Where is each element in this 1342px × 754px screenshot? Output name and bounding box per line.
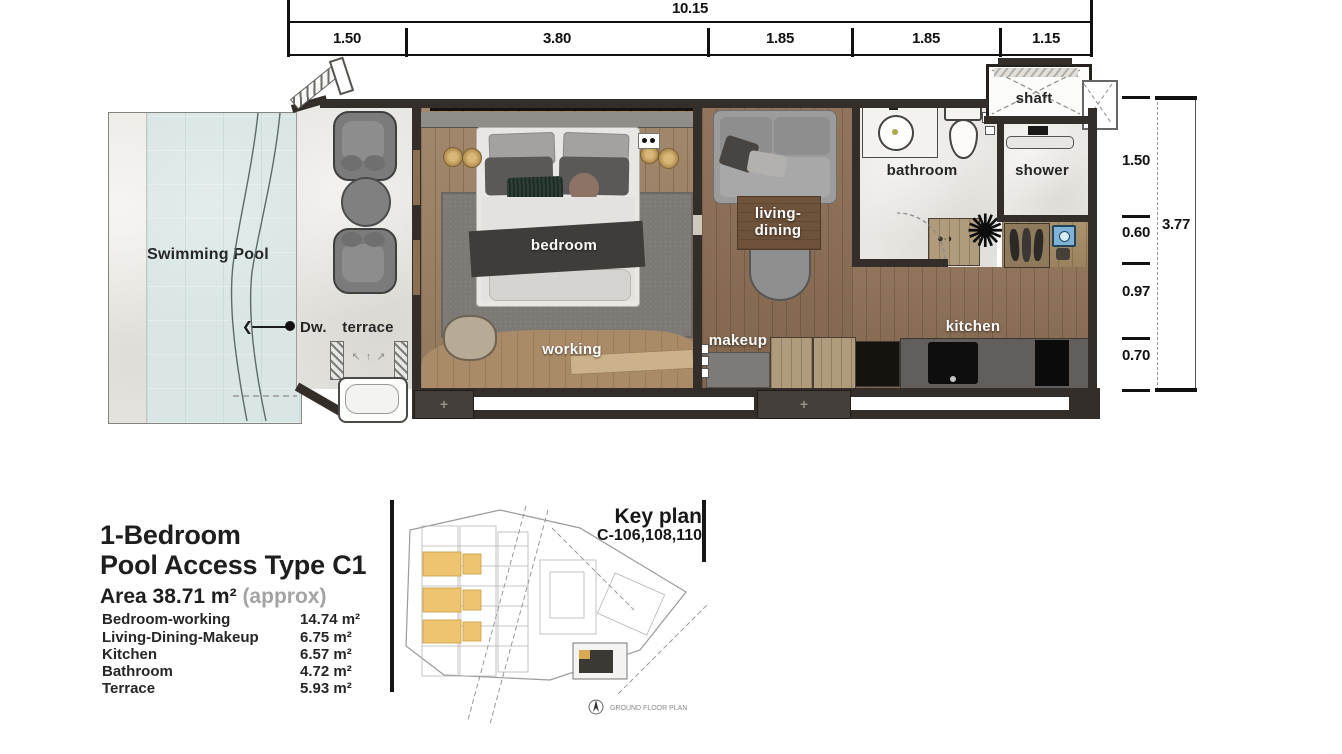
key-plan-title: Key plan <box>502 505 702 529</box>
wall-shower-divider <box>997 124 1004 222</box>
chair-cushion <box>341 155 362 171</box>
wall-accessory <box>985 126 995 135</box>
faucet-dot <box>950 376 956 382</box>
chair-cushion <box>342 244 384 282</box>
bed <box>476 127 640 307</box>
dim-tick <box>1122 337 1150 340</box>
sofa-cushion <box>774 117 830 155</box>
shaft-vent-strip <box>994 68 1078 77</box>
vent-hatch <box>330 341 344 380</box>
cooktop <box>1035 340 1069 386</box>
drain-arrow-line <box>252 326 289 328</box>
pouf <box>443 147 463 167</box>
room-area: 4.72 m² <box>300 663 352 680</box>
room-area-row: Terrace <box>102 680 282 698</box>
dim-end-bar <box>287 0 290 57</box>
dim-top-overall: 10.15 <box>288 0 1092 17</box>
area-qualifier: (approx) <box>242 585 326 608</box>
floor-plan-sheet: 10.15 1.50 3.80 1.85 1.85 1.15 1.50 0.60… <box>0 0 1342 754</box>
hanging-clothes <box>1009 229 1020 262</box>
dim-tick <box>1122 215 1150 218</box>
facade-post: + <box>414 390 474 419</box>
area-value: Area 38.71 m² <box>100 585 237 608</box>
dim-right-seg: 0.60 <box>1116 224 1156 241</box>
switch-dot <box>642 138 647 143</box>
wardrobe <box>1004 223 1050 268</box>
north-compass <box>589 700 603 714</box>
sliding-door <box>413 240 420 295</box>
dim-right-overall: 3.77 <box>1157 216 1195 233</box>
terrace-side-table <box>341 177 391 227</box>
room-area-row: Bathroom <box>102 663 282 681</box>
headboard-shelf <box>421 112 693 128</box>
swimming-pool <box>108 112 302 424</box>
bathtub <box>338 377 408 423</box>
room-area-value: 6.75 m² <box>300 629 352 647</box>
vent-hatch <box>394 341 408 380</box>
dim-end-bar <box>1090 0 1093 57</box>
basin-sink <box>878 115 914 151</box>
dim-top-seg: 1.15 <box>1000 30 1092 47</box>
room-area-value: 6.57 m² <box>300 646 352 664</box>
room-name: Living-Dining-Makeup <box>102 629 259 646</box>
dim-top-seg: 1.85 <box>708 30 852 47</box>
dim-tick <box>1122 96 1150 99</box>
kitchen-label: kitchen <box>940 318 1006 335</box>
dim-top-seg: 1.50 <box>288 30 406 47</box>
terrace-armchair <box>333 111 397 181</box>
key-plan-unit-code: C-106,108,110 <box>502 527 702 545</box>
key-plan-right-bar <box>702 500 706 562</box>
kitchen-sink <box>928 342 978 384</box>
room-area: 6.75 m² <box>300 629 352 646</box>
makeup-label: makeup <box>706 332 770 349</box>
dim-tick <box>1122 389 1150 392</box>
dim-right-seg: 0.70 <box>1116 347 1156 364</box>
dining-chair <box>749 243 811 301</box>
inset-plan <box>573 643 627 679</box>
unit-type-title-line2: Pool Access Type C1 <box>100 551 366 580</box>
dim-right-extent <box>1157 97 1196 390</box>
drain-dot <box>892 129 898 135</box>
terrace-label: terrace <box>336 319 400 336</box>
facade-window <box>851 397 1069 410</box>
living-dining-label-2: dining <box>748 222 808 239</box>
chair-cushion <box>341 232 362 247</box>
room-area-value: 4.72 m² <box>300 663 352 681</box>
room-name: Kitchen <box>102 646 157 663</box>
room-area-value: 5.93 m² <box>300 680 352 698</box>
dim-right-seg: 0.97 <box>1116 283 1156 300</box>
bathroom-label: bathroom <box>884 162 960 179</box>
shower-label: shower <box>1006 162 1078 179</box>
door-gap <box>693 215 702 235</box>
room-area: 6.57 m² <box>300 646 352 663</box>
switch-dot <box>650 138 655 143</box>
bathtub-basin <box>345 384 399 414</box>
wall-shaft-bottom <box>984 116 1094 124</box>
post-mark: + <box>415 391 473 418</box>
dim-tick <box>1155 96 1197 100</box>
pool-water <box>147 113 301 423</box>
dim-tick <box>1155 388 1197 392</box>
wall-bathroom-bottom <box>852 259 948 267</box>
pool-deck <box>109 113 147 423</box>
working-label: working <box>540 341 604 358</box>
post-mark: + <box>758 391 850 418</box>
highlighted-units <box>423 552 481 643</box>
makeup-ledge <box>706 352 770 388</box>
wall-right <box>1088 108 1097 389</box>
desk-chair <box>443 315 497 361</box>
shower-bar <box>1006 136 1074 149</box>
drain-dot <box>285 321 295 331</box>
room-area-value: 14.74 m² <box>300 611 360 629</box>
pouf <box>658 148 679 169</box>
key-plan-caption: GROUND FLOOR PLAN <box>610 705 687 712</box>
washing-machine <box>1052 225 1076 247</box>
pool-label: Swimming Pool <box>146 246 270 264</box>
wall-living-bathroom <box>852 108 860 267</box>
terrace-armchair <box>333 228 397 294</box>
wall-shower-bottom <box>1004 215 1088 222</box>
hanging-clothes <box>1033 229 1044 262</box>
sofa <box>713 110 837 204</box>
cabinet-divider <box>812 338 814 389</box>
area-line: Area 38.71 m² (approx) <box>100 585 326 609</box>
chair-cushion <box>364 155 385 171</box>
facade-post: + <box>757 390 851 419</box>
makeup-cabinet <box>770 337 856 390</box>
room-name: Bathroom <box>102 663 173 680</box>
sliding-door <box>413 150 420 205</box>
dim-line <box>288 21 1092 23</box>
shaft-label: shaft <box>996 90 1072 107</box>
drain-label: Dw. <box>300 319 327 336</box>
switch-plate <box>638 133 660 149</box>
bedroom-label: bedroom <box>524 237 604 254</box>
facade-window <box>474 397 754 410</box>
living-dining-label-1: living- <box>748 205 808 222</box>
key-plan-left-bar <box>390 500 394 692</box>
unit-type-title-line1: 1-Bedroom <box>100 521 241 550</box>
dim-line <box>288 54 1092 56</box>
appliance-black <box>852 341 900 387</box>
dim-right-seg: 1.50 <box>1116 152 1156 169</box>
chair-cushion <box>364 232 385 247</box>
room-area-row: Living-Dining-Makeup <box>102 629 302 647</box>
room-area: 5.93 m² <box>300 680 352 697</box>
dim-tick <box>1122 262 1150 265</box>
hanging-clothes <box>1022 228 1031 262</box>
room-area: 14.74 m² <box>300 611 360 628</box>
room-name: Terrace <box>102 680 155 697</box>
room-name: Bedroom-working <box>102 611 230 628</box>
vent-arrows: ↖ ↑ ↗ <box>344 350 394 363</box>
shaft-top-bar <box>998 58 1072 65</box>
stool <box>1056 248 1070 260</box>
wall-bedroom-living <box>693 108 702 388</box>
dim-top-seg: 3.80 <box>406 30 708 47</box>
shower-mount <box>1028 126 1048 135</box>
dim-top-seg: 1.85 <box>852 30 1000 47</box>
wall-left <box>412 99 421 389</box>
decor-items: ●∙◗ <box>937 233 953 245</box>
room-area-row: Kitchen <box>102 646 282 664</box>
room-area-row: Bedroom-working <box>102 611 282 629</box>
washer-door <box>1059 231 1070 242</box>
pouf <box>462 148 482 168</box>
